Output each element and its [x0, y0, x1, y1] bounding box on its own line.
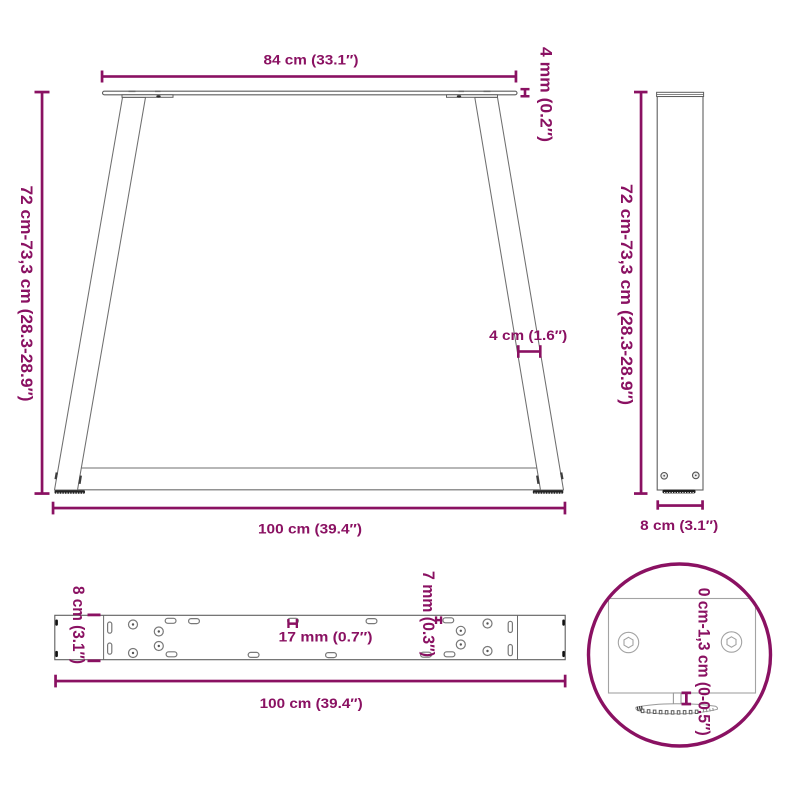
svg-text:84 cm (33.1″): 84 cm (33.1″)	[264, 52, 359, 68]
svg-text:100 cm (39.4″): 100 cm (39.4″)	[260, 695, 363, 711]
svg-text:8 cm (3.1″): 8 cm (3.1″)	[640, 517, 718, 533]
svg-text:4 cm (1.6″): 4 cm (1.6″)	[489, 327, 567, 343]
svg-text:17 mm (0.7″): 17 mm (0.7″)	[279, 629, 373, 645]
svg-text:8 cm (3.1″): 8 cm (3.1″)	[69, 586, 87, 664]
svg-text:100 cm (39.4″): 100 cm (39.4″)	[258, 520, 362, 536]
svg-text:0 cm-1,3 cm (0-0.5″): 0 cm-1,3 cm (0-0.5″)	[695, 588, 713, 736]
svg-text:7 mm (0.3″): 7 mm (0.3″)	[419, 571, 437, 657]
svg-text:4 mm (0.2″): 4 mm (0.2″)	[537, 47, 555, 142]
svg-text:72 cm-73,3 cm (28.3-28.9″): 72 cm-73,3 cm (28.3-28.9″)	[617, 184, 635, 405]
svg-text:72 cm-73,3 cm (28.3-28.9″): 72 cm-73,3 cm (28.3-28.9″)	[17, 186, 35, 402]
